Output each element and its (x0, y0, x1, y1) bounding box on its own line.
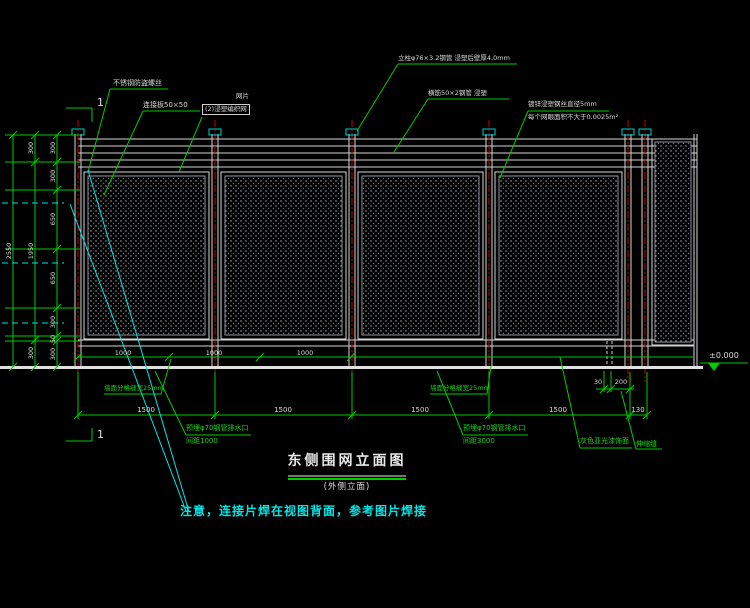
dim-1000-1: 1000 (206, 349, 223, 357)
dim-left-mid-2: 300 (27, 347, 35, 359)
section-mark-top: 1 (97, 99, 104, 107)
callout-expansion-joint: 伸缩缝 (636, 440, 657, 448)
callout-drain-right-spacing: 间距3000 (463, 437, 495, 445)
dim-left-total: 2550 (5, 243, 13, 260)
dim-200: 200 (615, 378, 627, 386)
level-mark-symbol (700, 363, 748, 371)
dim-1000-0: 1000 (115, 349, 132, 357)
drawing-subtitle: (外侧立面) (324, 483, 371, 491)
section-mark-bottom: 1 (97, 431, 104, 439)
callout-post-spec: 立柱φ76×3.2钢管 浸塑后壁厚4.0mm (398, 54, 510, 62)
dim-left-inner-1: 300 (49, 170, 57, 182)
callout-drain-right: 预埋φ70钢管排水口 (463, 424, 526, 432)
dim-left-inner-2: 650 (49, 213, 57, 225)
callout-wire-spec-2: 每个网眼面积不大于0.0025m² (528, 113, 618, 121)
callout-wire-spec-1: 镀锌浸塑钢丝直径5mm (528, 100, 597, 108)
callout-rail-spec: 横筋50×2钢管 浸塑 (428, 89, 487, 97)
callout-wall-joint-right: 墙面分格缝宽25mm (430, 384, 490, 392)
dim-30: 30 (594, 378, 602, 386)
mesh-panels (84, 139, 694, 345)
drawing-title: 东侧围网立面图 (288, 457, 407, 465)
dim-left-mid-1: 1950 (27, 243, 35, 260)
ground-line (0, 366, 703, 369)
callout-mesh-spec: (2)浸塑编织网 (202, 104, 250, 115)
dim-1500-0: 1500 (137, 406, 155, 414)
left-dimension-chains (5, 131, 80, 371)
callout-mesh-name: 网片 (236, 92, 249, 100)
dim-1500-2: 1500 (411, 406, 429, 414)
callout-drain-left-spacing: 间距1000 (186, 437, 218, 445)
dim-left-mid-0: 300 (27, 142, 35, 154)
dim-1000-2: 1000 (297, 349, 314, 357)
dim-1500-1: 1500 (274, 406, 292, 414)
callout-paint-finish: 灰色亚光漆饰面 (580, 437, 629, 445)
title-underline (288, 476, 406, 479)
dim-left-inner-0: 300 (49, 142, 57, 154)
callout-wall-joint-left: 墙面分格缝宽25mm (104, 384, 164, 392)
dim-left-inner-3: 650 (49, 272, 57, 284)
weld-note: 注意，连接片焊在视图背面，参考图片焊接 (180, 507, 427, 515)
dim-130: 130 (631, 406, 644, 414)
post-caps (72, 129, 651, 135)
callout-anti-theft-screw: 不锈钢防盗螺丝 (113, 79, 162, 87)
cad-elevation-drawing: 不锈钢防盗螺丝 连接板50×50 网片 (2)浸塑编织网 立柱φ76×3.2钢管… (0, 0, 750, 608)
dim-left-inner-6: 300 (49, 348, 57, 360)
dim-1500-3: 1500 (549, 406, 567, 414)
callout-drain-left: 预埋φ70钢管排水口 (186, 424, 249, 432)
bottom-dimension-rows (74, 353, 694, 419)
level-mark-value: ±0.000 (709, 352, 739, 360)
dim-left-inner-4: 300 (49, 316, 57, 328)
dim-left-inner-5: 50 (49, 335, 57, 343)
callout-connector-plate: 连接板50×50 (143, 101, 188, 109)
hidden-drain-pipe (607, 341, 612, 366)
